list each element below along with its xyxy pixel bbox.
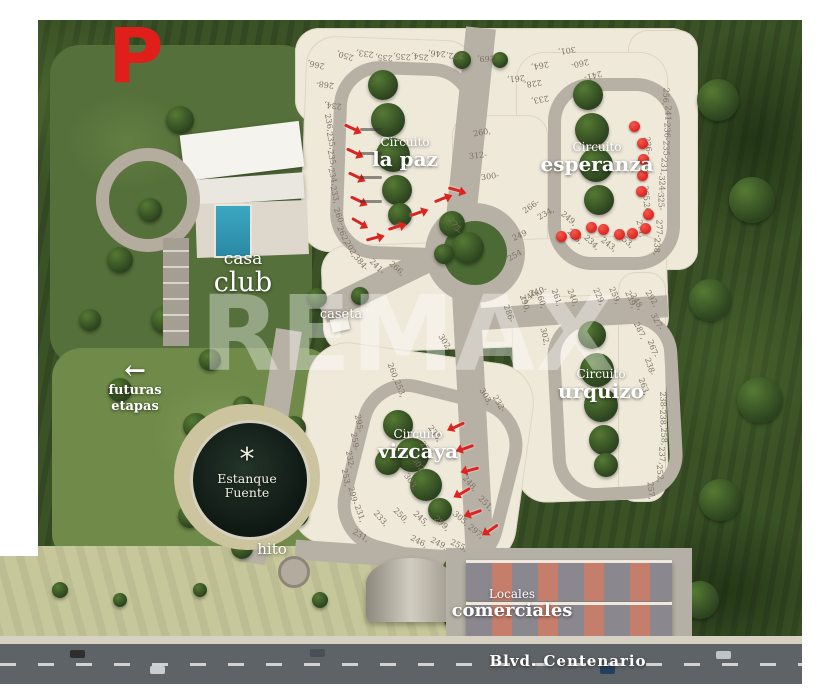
locales-line1: Locales bbox=[452, 588, 573, 601]
sold-arrow-marker bbox=[348, 171, 361, 179]
lot-owner-tag bbox=[360, 200, 382, 203]
sold-arrow-marker bbox=[434, 196, 447, 204]
marker-layer bbox=[0, 0, 823, 690]
sold-dot-marker bbox=[643, 209, 654, 220]
label-circuito-esperanza: Circuito esperanza bbox=[540, 141, 653, 176]
lot-owner-tag bbox=[360, 128, 382, 131]
sold-dot-marker bbox=[614, 229, 625, 240]
sold-dot-marker bbox=[586, 222, 597, 233]
sold-dot-marker bbox=[598, 224, 609, 235]
locales-line2: comerciales bbox=[452, 601, 573, 620]
p-logo: P bbox=[108, 18, 164, 94]
casa-club-line1: casa bbox=[214, 250, 272, 268]
sold-dot-marker bbox=[556, 231, 567, 242]
sold-arrow-marker bbox=[344, 123, 357, 131]
sold-dot-marker bbox=[570, 229, 581, 240]
futuras-line1: futuras bbox=[108, 383, 161, 398]
label-locales-comerciales: Locales comerciales bbox=[452, 588, 573, 620]
sold-arrow-marker bbox=[366, 235, 379, 241]
label-circuito-la-paz: Circuito la paz bbox=[372, 136, 438, 171]
fountain-icon: * bbox=[217, 448, 277, 472]
label-circuito-vizcaya: Circuito vizcaya bbox=[378, 428, 458, 463]
sold-arrow-marker bbox=[351, 217, 364, 226]
label-estanque-fuente: * Estanque Fuente bbox=[217, 448, 277, 499]
label-hito: hito bbox=[257, 541, 287, 557]
sold-arrow-marker bbox=[469, 509, 482, 516]
sold-arrow-marker bbox=[486, 524, 498, 534]
sold-arrow-marker bbox=[458, 487, 471, 496]
casa-club-line2: club bbox=[214, 268, 272, 297]
sold-arrow-marker bbox=[466, 466, 479, 472]
sold-arrow-marker bbox=[346, 147, 359, 155]
lot-owner-tag bbox=[360, 176, 382, 179]
futuras-line2: etapas bbox=[111, 399, 159, 414]
west-arrow-icon: ← bbox=[108, 360, 161, 383]
label-casa-club: casa club bbox=[214, 250, 272, 298]
estanque-line2: Fuente bbox=[217, 486, 277, 500]
sold-dot-marker bbox=[629, 121, 640, 132]
sold-dot-marker bbox=[640, 223, 651, 234]
label-futuras-etapas: ← futuras etapas bbox=[108, 360, 161, 415]
label-caseta: caseta bbox=[320, 308, 362, 322]
sold-dot-marker bbox=[627, 228, 638, 239]
label-blvd-centenario: Blvd. Centenario bbox=[489, 653, 646, 669]
circuit-name-line2: esperanza bbox=[540, 154, 653, 176]
circuit-name-line2: urquizo bbox=[558, 381, 644, 403]
circuit-name-line2: la paz bbox=[372, 149, 438, 171]
circuit-name-line2: vizcaya bbox=[378, 441, 458, 463]
sold-arrow-marker bbox=[388, 224, 401, 231]
sold-dot-marker bbox=[636, 186, 647, 197]
label-circuito-urquizo: Circuito urquizo bbox=[558, 368, 644, 403]
sold-arrow-marker bbox=[461, 444, 474, 451]
sold-arrow-marker bbox=[410, 210, 423, 217]
estanque-line1: Estanque bbox=[217, 472, 277, 486]
site-plan: REMAX 266,268-234,250,233,235,235,254,24… bbox=[0, 0, 823, 690]
